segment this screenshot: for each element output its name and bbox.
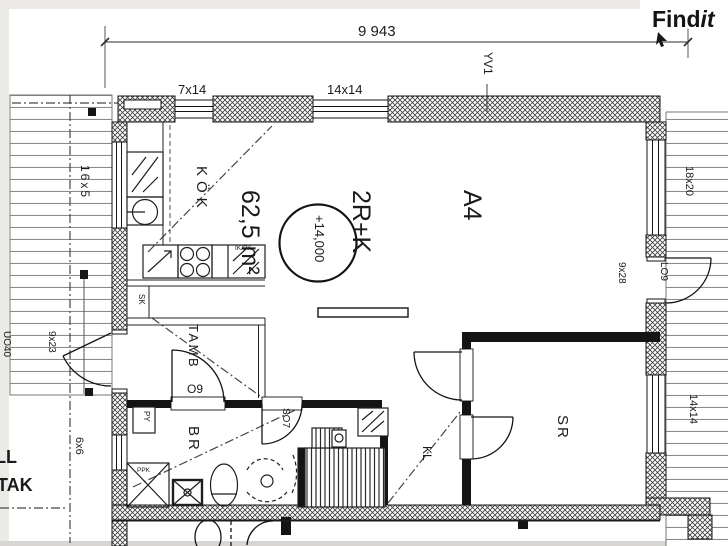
window-size-top-1: 7x14 [178,83,206,97]
findit-watermark-bold: Find [652,6,701,32]
findit-watermark: Findit [652,6,715,33]
small-window-dimension: 6x6 [72,437,84,455]
shower-door-code: SO7 [280,408,291,428]
edge-text-ll: LL [0,448,17,467]
right-door-code: LO9 [656,262,670,284]
balcony-door-size: 9x23 [44,331,59,357]
edge-text-tak: TAK [0,476,33,495]
window-size-right-1: 18x20 [682,166,694,196]
room-label-bedroom: SR [554,415,570,440]
closet-label-sk: SK [137,294,145,305]
floorplan-screenshot: 9 943 7x14 14x14 YV1 KÖK IK/PK SK +14,00… [0,0,728,546]
balcony-door-code: UO40 [0,331,14,357]
cursor-icon [656,32,667,47]
window-size-right-2: 14x14 [686,394,698,424]
wall-tag-yv1: YV1 [481,52,494,75]
right-door-label: LO9 9x28 [586,262,698,284]
apartment-title-block: A4 2R+K 62,5 m² [157,190,564,275]
shaft-label-py: PY [142,411,150,422]
fixture-label-ppk: PPK [137,468,150,475]
findit-watermark-italic: it [701,6,715,32]
balcony-door-label: 9x23 UO40 [0,331,89,357]
apartment-type: 2R+K [342,190,379,275]
right-door-size: 9x28 [614,262,628,284]
exterior-walls [112,96,712,546]
room-label-closet: KL [420,446,433,461]
apartment-unit: A4 [453,190,490,275]
apartment-area: 62,5 m² [231,190,268,275]
overall-width-dimension: 9 943 [358,24,396,40]
bathroom-fixtures [127,407,388,507]
window-size-top-2: 14x14 [327,83,362,97]
hall-door-code: O9 [187,383,203,396]
balcony-dimension: 16x5 [78,165,91,199]
room-label-bathroom: BR [185,426,201,453]
balcony-right [666,112,728,546]
room-label-hall: TAMB [186,324,200,369]
